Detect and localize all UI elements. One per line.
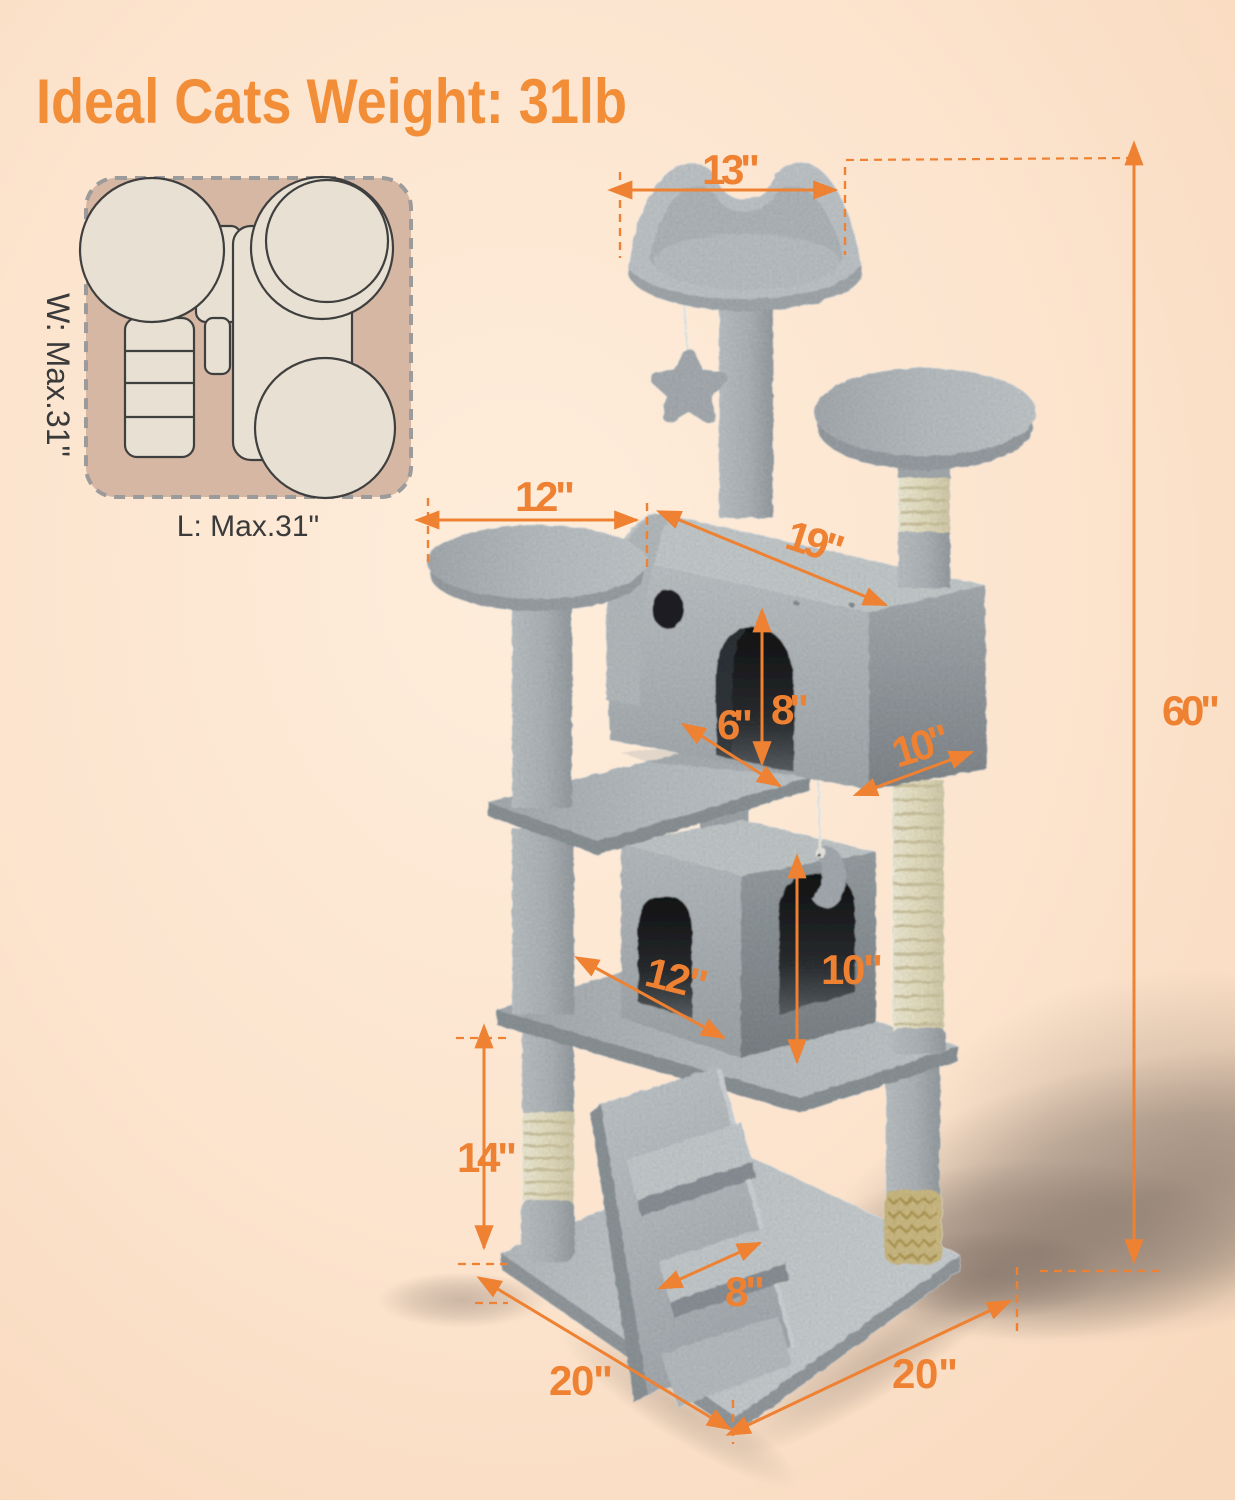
svg-text:8": 8" — [725, 1268, 765, 1315]
svg-text:20": 20" — [892, 1350, 958, 1397]
svg-text:W: Max.31": W: Max.31" — [40, 293, 76, 457]
svg-text:Ideal Cats Weight: 31lb: Ideal Cats Weight: 31lb — [36, 67, 627, 137]
svg-text:6": 6" — [717, 701, 753, 748]
svg-text:12": 12" — [515, 473, 575, 520]
svg-text:60": 60" — [1162, 687, 1220, 734]
svg-text:8": 8" — [771, 686, 809, 733]
svg-text:14": 14" — [457, 1134, 517, 1181]
svg-text:20": 20" — [549, 1357, 613, 1404]
svg-text:L: Max.31": L: Max.31" — [177, 510, 319, 543]
svg-text:13": 13" — [702, 146, 760, 193]
svg-text:10": 10" — [821, 946, 883, 993]
